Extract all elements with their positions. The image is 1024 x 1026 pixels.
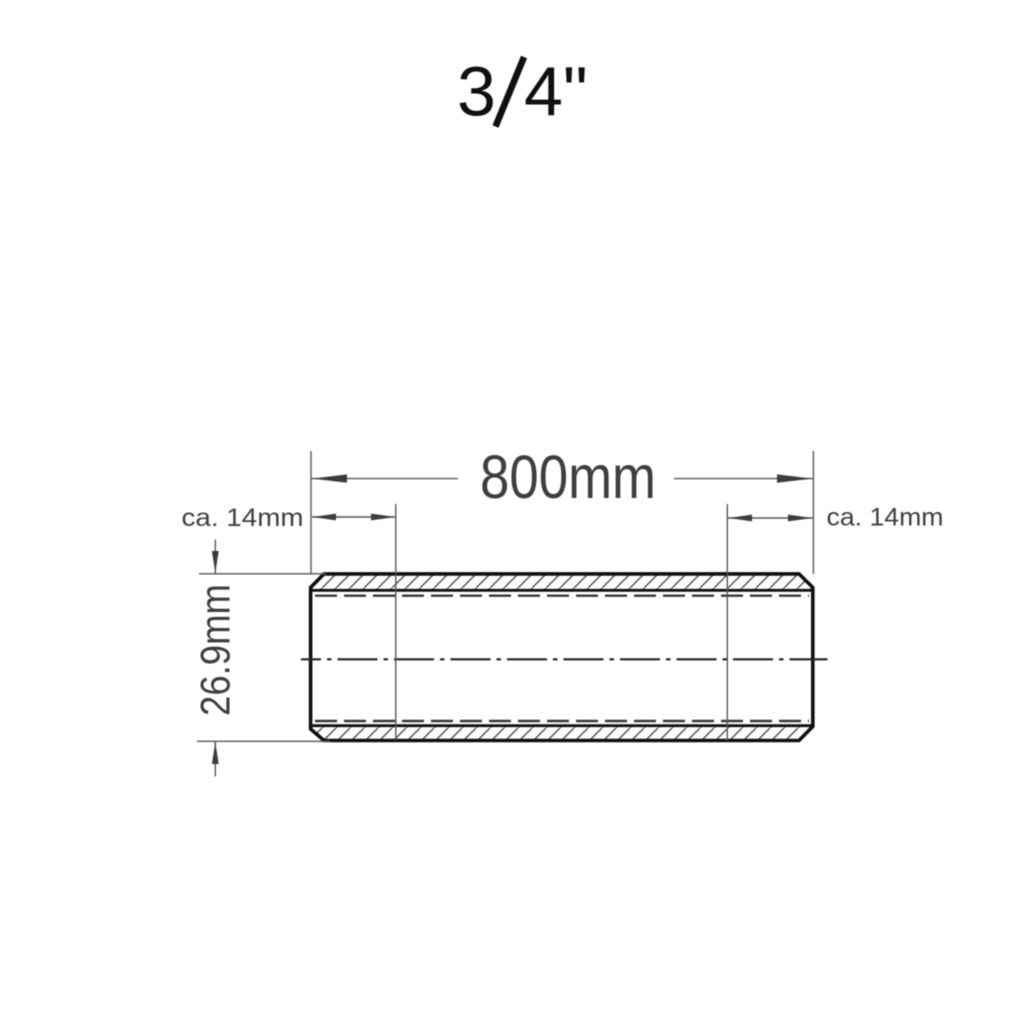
svg-text:ca. 14mm: ca. 14mm <box>827 504 944 532</box>
svg-text:4": 4" <box>524 53 588 131</box>
svg-text:26.9mm: 26.9mm <box>191 584 238 716</box>
svg-text:ca. 14mm: ca. 14mm <box>182 504 304 532</box>
svg-text:3: 3 <box>457 53 496 131</box>
svg-text:800mm: 800mm <box>480 443 656 511</box>
